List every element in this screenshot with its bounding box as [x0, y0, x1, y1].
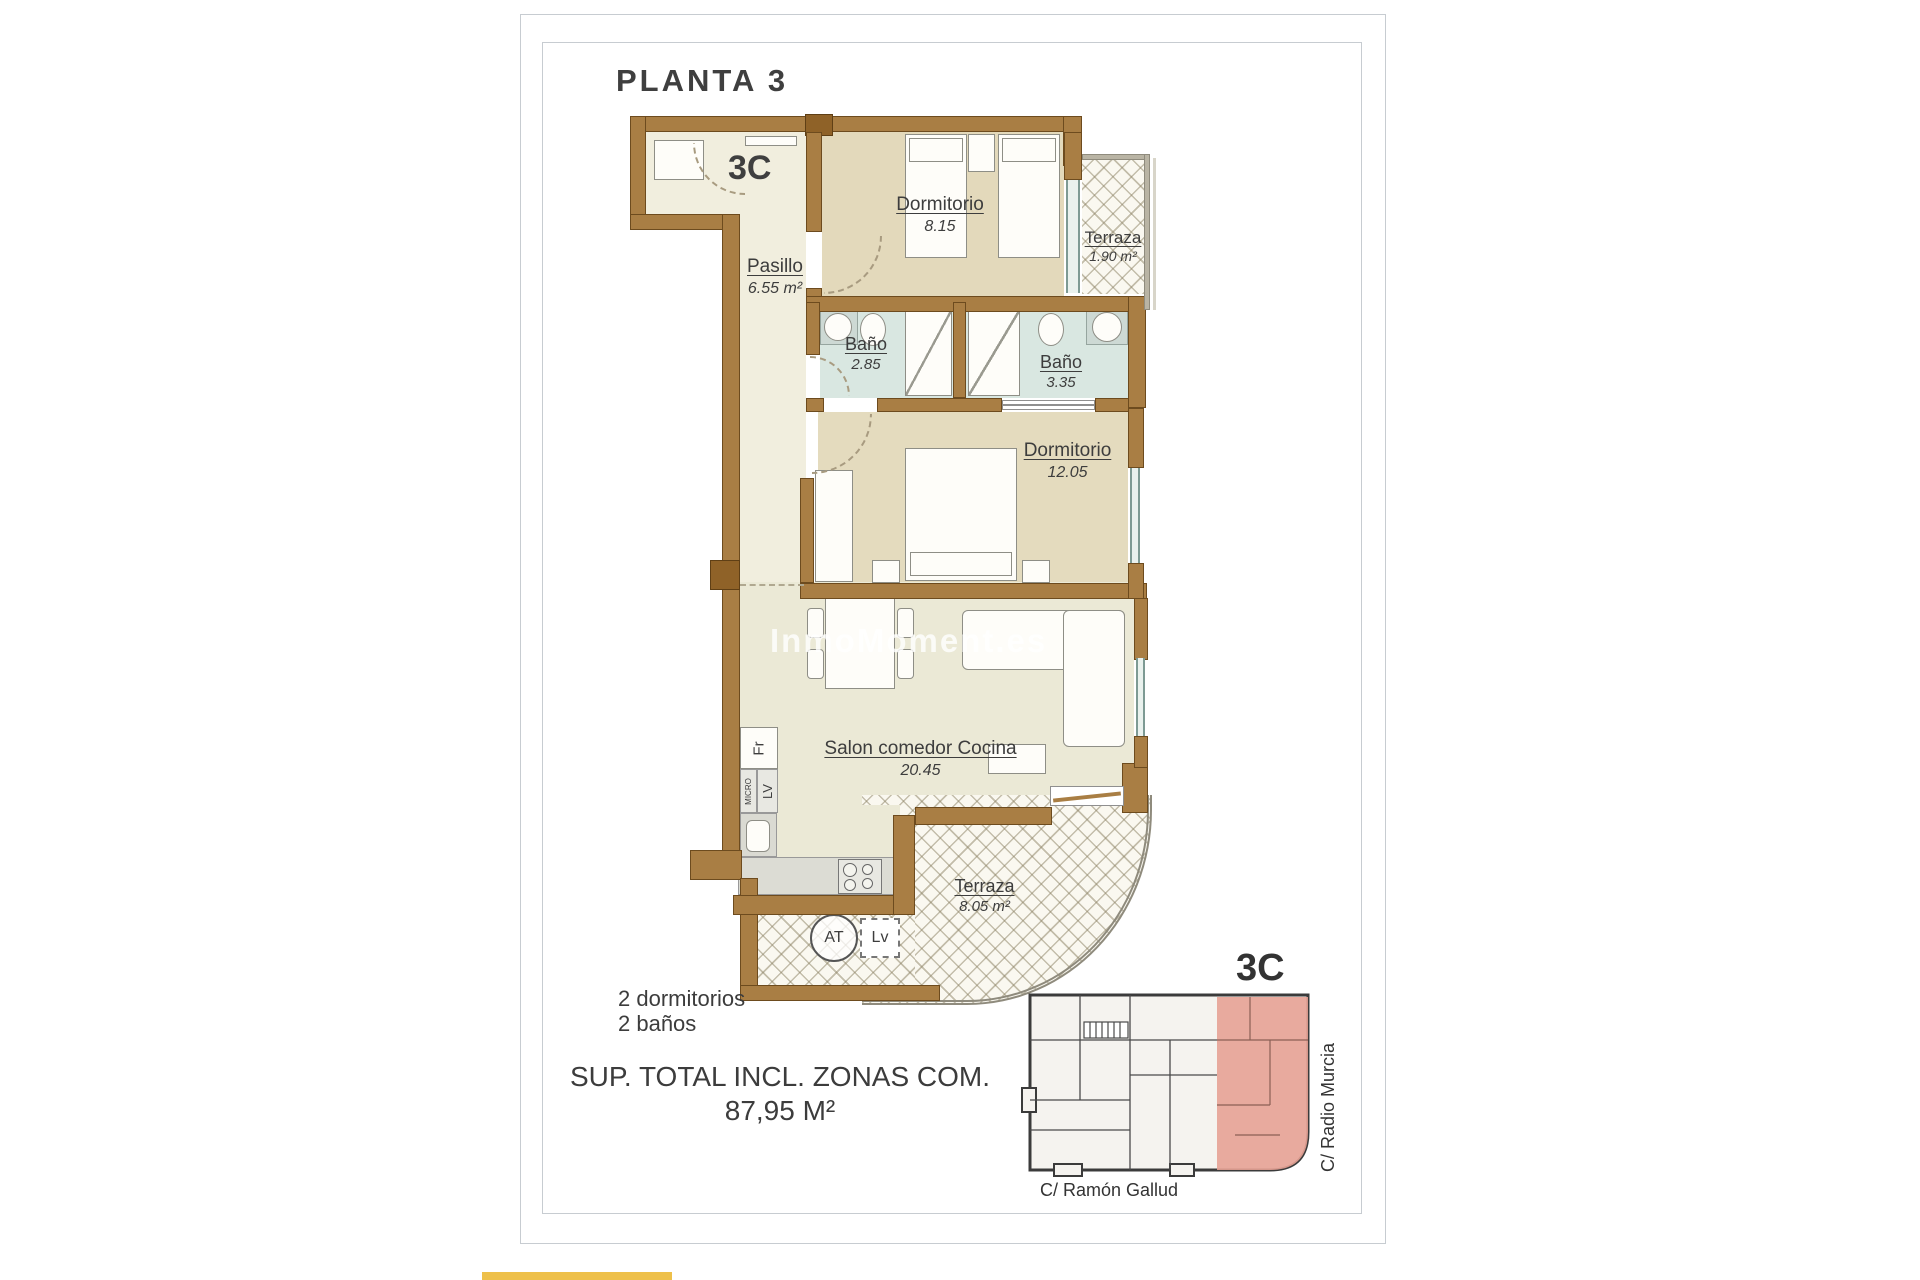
wall-dorm1-banos [806, 296, 1144, 312]
label-salon: Salon comedor Cocina 20.45 [818, 738, 1023, 780]
wall-banos-bottom-a [806, 398, 824, 412]
water-heater-label: AT [824, 929, 843, 947]
wall-dorm1-right [1064, 132, 1082, 180]
total-surface-label: SUP. TOTAL INCL. ZONAS COM. [560, 1060, 1000, 1094]
wall-right-5 [1134, 736, 1148, 768]
wall-right-3 [1128, 563, 1144, 599]
bano2-sliding-door [1002, 400, 1095, 410]
total-surface-value: 87,95 M² [560, 1094, 1000, 1128]
label-salon-name: Salon comedor Cocina [818, 738, 1023, 761]
entry-door-leaf [745, 136, 797, 146]
keyplan-street-bottom: C/ Ramón Gallud [1040, 1180, 1178, 1201]
wall-pasillo-dorm1 [806, 132, 822, 232]
label-dormitorio1: Dormitorio 8.15 [880, 194, 1000, 236]
wall-curve-start [1122, 763, 1148, 813]
label-terraza2-name: Terraza [932, 876, 1037, 898]
microwave: MICRO [740, 769, 757, 813]
label-terraza1-area: 1.90 m² [1062, 248, 1164, 265]
stove [838, 859, 882, 894]
burner-2 [844, 879, 856, 891]
label-pasillo-name: Pasillo [716, 256, 834, 279]
fridge-label: Fr [750, 741, 767, 755]
wall-right-1 [1128, 296, 1146, 408]
wall-banos-bottom-b [877, 398, 1002, 412]
label-dormitorio2-name: Dormitorio [1005, 440, 1130, 463]
label-bano2: Baño 3.35 [1010, 352, 1112, 392]
wall-bottom [740, 985, 940, 1001]
keyplan-unit-label: 3C [1236, 946, 1285, 992]
wall-right-2 [1128, 408, 1144, 468]
page-title: PLANTA 3 [616, 62, 788, 99]
window-salon [1136, 658, 1145, 736]
washing-machine: Lv [860, 918, 900, 958]
feature-bedrooms: 2 dormitorios [618, 986, 745, 1012]
toilet-bano2 [1038, 313, 1064, 346]
label-dormitorio2: Dormitorio 12.05 [1005, 440, 1130, 482]
accent-strip [482, 1272, 672, 1280]
window-dorm2 [1130, 468, 1140, 563]
nightstand-right [1022, 560, 1050, 583]
pillow-1 [909, 138, 963, 162]
wall-kitchen-bottom [733, 895, 915, 915]
floor-terraza1-tiles [1082, 160, 1144, 294]
wall-dorm2-salon [800, 583, 1147, 599]
kitchen-sink-basin [746, 820, 770, 852]
label-pasillo: Pasillo 6.55 m² [716, 256, 834, 298]
label-bano1-area: 2.85 [816, 356, 916, 374]
keyplan-street-right: C/ Radio Murcia [1318, 1043, 1339, 1172]
dishwasher-label: LV [760, 784, 775, 799]
scanned-floorplan-page: PLANTA 3 Fr MICRO LV AT [0, 0, 1920, 1280]
wall-right-4 [1134, 598, 1148, 660]
terraza2-sliding-door [1050, 786, 1124, 806]
wall-left-upper [630, 116, 646, 230]
label-bano2-area: 3.35 [1010, 374, 1112, 392]
label-terraza1: Terraza 1.90 m² [1062, 228, 1164, 265]
burner-4 [862, 878, 873, 889]
dishwasher: LV [757, 769, 778, 813]
washing-machine-label: Lv [872, 929, 889, 947]
label-pasillo-area: 6.55 m² [716, 279, 834, 298]
wall-corner-step [690, 850, 742, 880]
nightstand-dorm1 [968, 134, 995, 172]
label-dormitorio2-area: 12.05 [1005, 463, 1130, 482]
label-dormitorio1-area: 8.15 [880, 217, 1000, 236]
wall-kitchen-right [893, 815, 915, 915]
burner-1 [843, 863, 857, 877]
burner-3 [862, 864, 873, 875]
wardrobe-dorm2 [815, 470, 853, 582]
unit-label: 3C [728, 148, 771, 189]
feature-bathrooms: 2 baños [618, 1011, 696, 1037]
terraza1-parapet-top [1082, 154, 1150, 160]
wall-salon-terraza [915, 807, 1052, 825]
label-salon-area: 20.45 [818, 761, 1023, 780]
wall-left-pilaster [710, 560, 740, 590]
pillow-2 [1002, 138, 1056, 162]
water-heater: AT [810, 914, 858, 962]
terraza2-door-leaf [1053, 791, 1121, 802]
wall-pasillo-dorm2 [800, 478, 814, 583]
label-terraza1-name: Terraza [1062, 228, 1164, 248]
label-dormitorio1-name: Dormitorio [880, 194, 1000, 217]
pasillo-salon-threshold [740, 584, 804, 586]
sink-bano2 [1092, 312, 1122, 342]
wall-top [630, 116, 1080, 132]
nightstand-left [872, 560, 900, 583]
pillows-double [910, 552, 1012, 576]
kitchen-counter [738, 857, 910, 895]
label-terraza2: Terraza 8.05 m² [932, 876, 1037, 916]
wall-left-main [722, 214, 740, 864]
watermark: InmoMoment.es [770, 622, 1047, 660]
fridge: Fr [740, 727, 778, 769]
label-bano1-name: Baño [816, 334, 916, 356]
microwave-label: MICRO [744, 778, 753, 805]
label-bano2-name: Baño [1010, 352, 1112, 374]
sofa-chaise [1063, 610, 1125, 747]
label-terraza2-area: 8.05 m² [932, 898, 1037, 916]
floor-pasillo [740, 132, 806, 584]
label-bano1: Baño 2.85 [816, 334, 916, 374]
wall-bano-divider [953, 302, 966, 398]
